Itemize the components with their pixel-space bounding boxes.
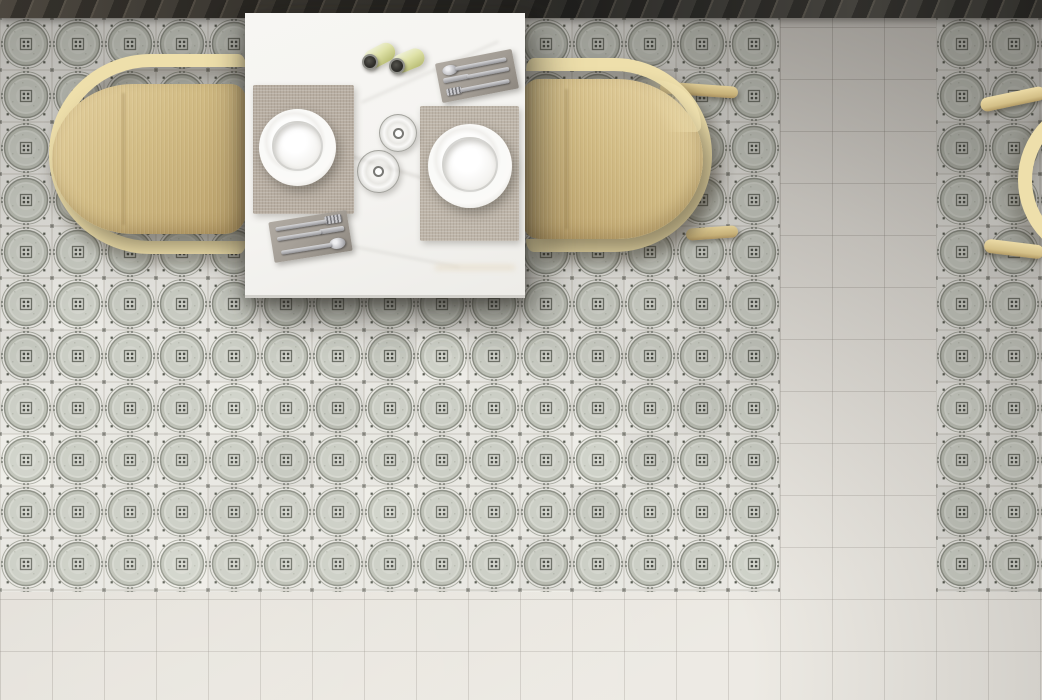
- cement-tile: [988, 590, 1040, 592]
- cement-tile: [988, 434, 1040, 486]
- plate-well: [272, 121, 323, 172]
- glass-stem: [373, 166, 384, 177]
- cement-tile: [988, 278, 1040, 330]
- cement-tile: [936, 174, 988, 226]
- cement-tile: [988, 486, 1040, 538]
- cement-tile: [988, 18, 1040, 70]
- cement-tile: [312, 330, 364, 382]
- cement-tile: [416, 590, 468, 592]
- glass: [379, 114, 417, 152]
- cement-tile: [0, 18, 52, 70]
- cement-tile: [52, 486, 104, 538]
- cement-tile: [728, 330, 780, 382]
- cement-tile: [936, 434, 988, 486]
- cement-tile: [520, 590, 572, 592]
- cement-tile: [468, 590, 520, 592]
- cement-tile: [416, 486, 468, 538]
- cement-tile: [260, 538, 312, 590]
- cement-tile: [260, 434, 312, 486]
- knife-handle: [467, 67, 510, 79]
- cement-tile: [624, 330, 676, 382]
- cement-tile: [572, 434, 624, 486]
- cement-tile: [468, 330, 520, 382]
- cement-tile: [52, 18, 104, 70]
- bottle-cap: [362, 54, 378, 70]
- cement-tile: [260, 590, 312, 592]
- cement-tile: [0, 226, 52, 278]
- cement-tile: [936, 486, 988, 538]
- plate-left: [259, 109, 336, 186]
- cement-tile: [468, 538, 520, 590]
- cement-tile: [936, 538, 988, 590]
- glass-stem: [393, 128, 404, 139]
- cement-tile: [104, 382, 156, 434]
- cement-tile: [208, 434, 260, 486]
- fork-handle: [460, 79, 510, 92]
- chair-right-seat-crease: [565, 89, 568, 230]
- cement-tile: [260, 486, 312, 538]
- cement-tile: [624, 590, 676, 592]
- cement-tile: [104, 486, 156, 538]
- cement-tile: [312, 486, 364, 538]
- cement-tile: [520, 538, 572, 590]
- cement-tile: [312, 382, 364, 434]
- knife-icon: [319, 226, 344, 234]
- cement-tile: [52, 538, 104, 590]
- cement-tile: [156, 434, 208, 486]
- cement-tile: [728, 278, 780, 330]
- marble-vein: [435, 265, 515, 270]
- cement-tile: [104, 330, 156, 382]
- cement-tile: [156, 590, 208, 592]
- cement-tile: [624, 278, 676, 330]
- chair-left-seat: [52, 84, 246, 234]
- cement-tile: [0, 174, 52, 226]
- cement-tile: [936, 590, 988, 592]
- cement-tile: [936, 70, 988, 122]
- cement-tile: [936, 122, 988, 174]
- chair-right-seat: [523, 79, 703, 239]
- cement-tile: [104, 538, 156, 590]
- cement-tile: [728, 174, 780, 226]
- cement-tile: [728, 382, 780, 434]
- cement-tile: [0, 434, 52, 486]
- cement-tile: [156, 382, 208, 434]
- cement-tile: [156, 538, 208, 590]
- cement-tile: [364, 538, 416, 590]
- cement-tile: [0, 486, 52, 538]
- cement-tile: [572, 590, 624, 592]
- cement-tile: [936, 226, 988, 278]
- cement-tile: [416, 538, 468, 590]
- cement-tile: [52, 330, 104, 382]
- cement-tile: [728, 434, 780, 486]
- cement-tile: [260, 382, 312, 434]
- cement-tile: [0, 278, 52, 330]
- cement-tile: [624, 382, 676, 434]
- cement-tile: [208, 382, 260, 434]
- cement-tile: [364, 382, 416, 434]
- cement-tile: [676, 382, 728, 434]
- cement-tile: [312, 434, 364, 486]
- cement-tile: [676, 18, 728, 70]
- cement-tile: [468, 434, 520, 486]
- cement-tile: [0, 382, 52, 434]
- bottle-cap: [389, 58, 405, 74]
- cement-tile: [52, 278, 104, 330]
- cement-tile: [416, 330, 468, 382]
- cement-tile: [0, 70, 52, 122]
- cement-tile: [520, 382, 572, 434]
- cement-tile: [52, 590, 104, 592]
- cement-tile: [208, 590, 260, 592]
- cement-tile: [520, 330, 572, 382]
- fork-icon: [324, 214, 342, 225]
- cement-tile: [0, 538, 52, 590]
- cement-tile: [572, 278, 624, 330]
- cement-tile: [572, 486, 624, 538]
- cement-tile: [676, 330, 728, 382]
- cement-tile: [520, 434, 572, 486]
- chair-left-seat-crease: [122, 93, 125, 225]
- spoon-handle: [281, 243, 332, 254]
- cement-tile: [156, 278, 208, 330]
- cement-tile: [260, 330, 312, 382]
- cutlery-mat-top: [435, 49, 519, 103]
- cement-tile: [312, 538, 364, 590]
- cement-tile: [364, 486, 416, 538]
- cement-tile: [624, 434, 676, 486]
- cement-tile: [936, 18, 988, 70]
- cement-tile: [988, 538, 1040, 590]
- cement-tile: [728, 122, 780, 174]
- knife-handle: [277, 230, 322, 240]
- cement-tile: [572, 382, 624, 434]
- cement-tile: [728, 18, 780, 70]
- cement-tile: [520, 486, 572, 538]
- cement-tile: [364, 590, 416, 592]
- cement-tile: [624, 486, 676, 538]
- cement-tile: [52, 434, 104, 486]
- cement-tile: [364, 434, 416, 486]
- cement-tile: [676, 278, 728, 330]
- cement-tile: [468, 486, 520, 538]
- cement-tile: [104, 278, 156, 330]
- cement-tile: [156, 330, 208, 382]
- cement-tile: [728, 538, 780, 590]
- cement-tile: [936, 278, 988, 330]
- cement-tile: [572, 330, 624, 382]
- dining-scene: [0, 0, 1042, 700]
- cement-tile: [52, 382, 104, 434]
- cement-tile: [468, 382, 520, 434]
- cement-tile: [728, 486, 780, 538]
- cement-tile: [988, 330, 1040, 382]
- cement-tile: [520, 278, 572, 330]
- glass: [357, 150, 400, 193]
- cement-tile: [104, 590, 156, 592]
- cement-tile: [208, 538, 260, 590]
- cement-tile: [0, 590, 52, 592]
- cement-tile: [676, 538, 728, 590]
- cement-tile: [676, 486, 728, 538]
- cement-tile: [0, 122, 52, 174]
- cement-tile: [312, 590, 364, 592]
- cement-tile: [208, 330, 260, 382]
- cement-tile: [676, 434, 728, 486]
- cement-tile: [936, 382, 988, 434]
- dining-table: [245, 13, 525, 298]
- cement-tile: [364, 330, 416, 382]
- plate-well: [442, 137, 497, 192]
- cement-tile: [624, 538, 676, 590]
- cement-tile: [104, 434, 156, 486]
- cement-tile: [156, 486, 208, 538]
- cement-tile: [416, 434, 468, 486]
- cement-tile: [416, 382, 468, 434]
- cement-tile: [936, 330, 988, 382]
- cement-tile: [0, 330, 52, 382]
- cement-tile: [676, 590, 728, 592]
- plate-right: [428, 124, 512, 208]
- cutlery-mat-bottom: [268, 210, 352, 263]
- cement-tile: [728, 590, 780, 592]
- cement-tile: [988, 382, 1040, 434]
- cement-tile: [208, 486, 260, 538]
- fork-icon: [446, 86, 462, 96]
- cement-tile: [572, 538, 624, 590]
